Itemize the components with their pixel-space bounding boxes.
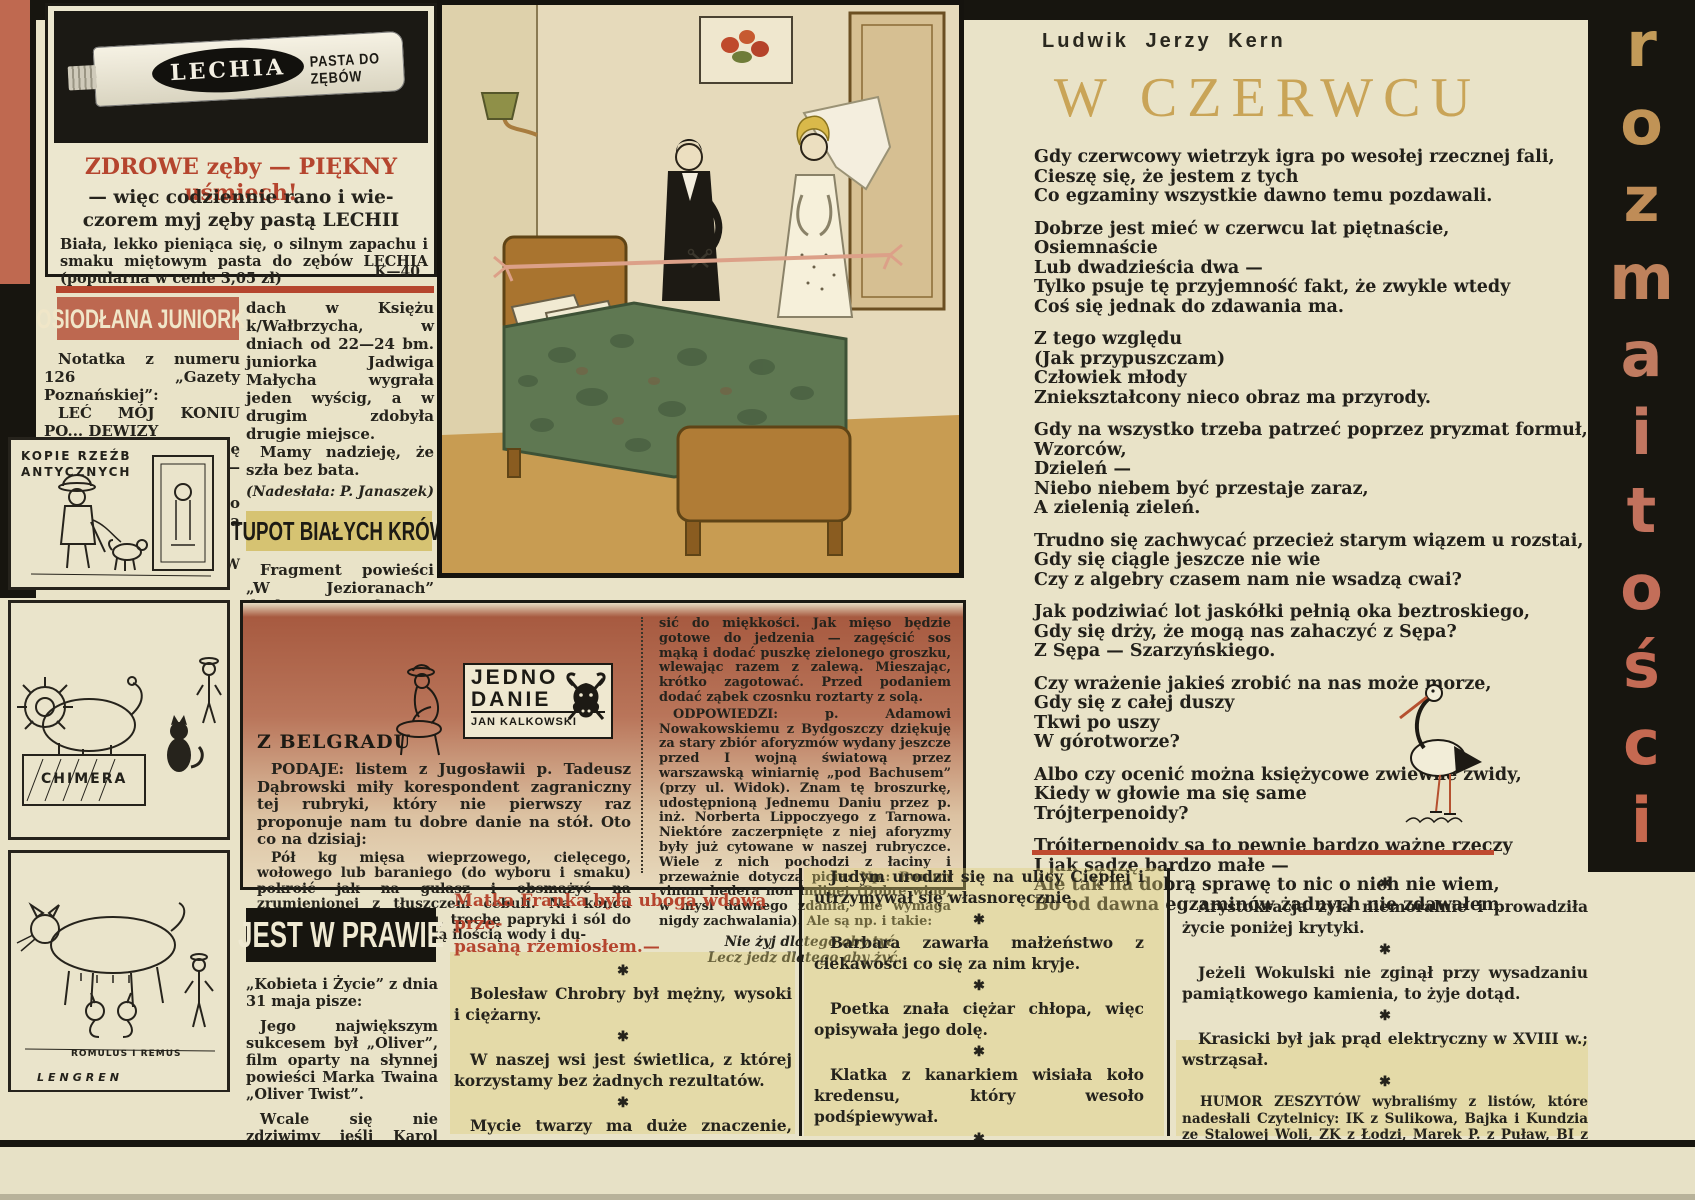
humor-quote: W naszej wsi jest świetlica, z której ko… (454, 1049, 792, 1091)
jedno-danie-logo: JEDNO DANIE JAN KALKOWSKI (463, 663, 613, 739)
toothpaste-tube-illustration: LECHIA PASTA DO ZĘBÓW (93, 31, 406, 107)
poem-underline (1032, 850, 1494, 855)
humor-quote: Krasicki był jak prąd elektryczny w XVII… (1182, 1028, 1588, 1070)
asterisk-separator: ✱ (454, 963, 792, 979)
masthead-rozmaitosci: r o z m a i t o ś c i (1588, 0, 1695, 872)
paragraph: LEĆ MÓJ KONIU PO... DEWIZY (44, 404, 240, 440)
asterisk-separator: ✱ (454, 1029, 792, 1045)
product-label: PASTA DO ZĘBÓW (309, 50, 391, 88)
masthead-letter: o (1620, 557, 1663, 619)
scan-bottom-edge (0, 1194, 1695, 1200)
paragraph: PODAJE: listem z Jugosławii p. Tadeusz D… (257, 761, 631, 849)
asterisk-separator: ✱ (814, 1044, 1144, 1060)
stanza: Jak podziwiać lot jaskółki pełnią oka be… (1034, 603, 1590, 662)
tupot-title-box: TUPOT BIAŁYCH KRÓW (246, 511, 432, 551)
wedding-cartoon (437, 0, 964, 578)
cartoon-panel-romulus-remus: ROMULUS I REMUS LENGREN (8, 850, 230, 1092)
paragraph: Mamy nadzieję, że szła bez bata. (246, 443, 434, 479)
bull-head-icon (563, 669, 609, 725)
asterisk-separator: ✱ (1182, 1008, 1588, 1024)
stanza: Gdy na wszystko trzeba patrzeć poprzez p… (1034, 421, 1590, 519)
cartoon-panel-chimera: CHIMERA (8, 600, 230, 840)
chimera-drawing (11, 603, 227, 837)
masthead-letter: i (1631, 402, 1652, 464)
humor-quote: Poetka znała ciężar chłopa, więc opisywa… (814, 998, 1144, 1040)
asterisk-separator: ✱ (1182, 876, 1588, 892)
prawie-title-box: JEST W PRAWIE (246, 908, 436, 962)
humor-colB-heading: Matka Franka była ubogą wdową prze- pasa… (454, 890, 792, 959)
stanza: Trudno się zachwycać przecież starym wią… (1034, 532, 1590, 591)
jedno-column-divider (641, 617, 643, 873)
asterisk-separator: ✱ (1182, 942, 1588, 958)
divider-c-d (1167, 868, 1170, 1136)
divider-b-c (799, 868, 802, 1136)
poem-title: W CZERWCU (1030, 66, 1505, 130)
prawie-title: JEST W PRAWIE (238, 914, 444, 956)
asterisk-separator: ✱ (1182, 1074, 1588, 1090)
humor-quote: Jeżeli Wokulski nie zginął przy wysadzan… (1182, 962, 1588, 1004)
humor-column-b: Matka Franka była ubogą wdową prze- pasa… (454, 890, 792, 1181)
ad-body: Biała, lekko pieniąca się, o silnym zapa… (60, 236, 428, 287)
humor-quote: Klatka z kanarkiem wisiała koło kredensu… (814, 1064, 1144, 1127)
jedno-danie-box: JEDNO DANIE JAN KALKOWSKI Z BELGRADU POD… (240, 600, 966, 890)
panel3-caption: ROMULUS I REMUS (71, 1049, 182, 1059)
osiodlana-title-box: OSIODŁANA JUNIORKA (57, 297, 239, 340)
humor-quote: Judym urodził się na ulicy Ciepłej i utr… (814, 866, 1144, 908)
tube-cap (68, 65, 97, 90)
masthead-letter: r (1626, 14, 1657, 76)
masthead-letter: m (1609, 247, 1674, 309)
belgrade-heading: Z BELGRADU (257, 731, 411, 753)
panel2-caption: CHIMERA (41, 771, 127, 787)
paragraph: Notatka z numeru 126 „Gazety Poznańskiej… (44, 350, 240, 404)
paragraph: sić do miękkości. Jak mięso będzie gotow… (659, 617, 951, 706)
artist-signature: LENGREN (37, 1071, 123, 1084)
asterisk-separator: ✱ (814, 912, 1144, 928)
brand-name: LECHIA (169, 54, 286, 86)
left-terracotta-strip (0, 0, 30, 284)
masthead-letter: c (1623, 712, 1660, 774)
masthead-letter: t (1627, 480, 1657, 542)
stanza: Dobrze jest mieć w czerwcu lat piętnaści… (1034, 220, 1590, 318)
paragraph: „Kobieta i Życie” z dnia 31 maja pisze: (246, 976, 438, 1010)
credit: (Nadesłała: P. Janaszek) (246, 483, 434, 501)
masthead-letter: ś (1623, 635, 1660, 697)
lechia-photo: LECHIA PASTA DO ZĘBÓW (54, 11, 428, 143)
paragraph: dach w Księżu k/Wałbrzycha, w dniach od … (246, 299, 434, 443)
magazine-page: LECHIA PASTA DO ZĘBÓW ZDROWE zęby — PIĘK… (0, 0, 1695, 1200)
humor-quote: Barbara zawarła małżeństwo z ciekawości … (814, 932, 1144, 974)
masthead-letter: a (1621, 324, 1663, 386)
ad-code: K—40 (374, 264, 420, 280)
red-rule-under-ad (56, 286, 434, 293)
stanza: Albo czy ocenić można księżycowe zwiewne… (1034, 766, 1590, 825)
paragraph: Jego największym sukcesem był „Oliver”, … (246, 1018, 438, 1103)
stanza: Z tego względu (Jak przypuszczam) Człowi… (1034, 330, 1590, 408)
masthead-letter: z (1623, 169, 1659, 231)
lechia-ad: LECHIA PASTA DO ZĘBÓW ZDROWE zęby — PIĘK… (45, 3, 437, 277)
asterisk-separator: ✱ (454, 1095, 792, 1111)
cartoon-panel-antique-copies: KOPIE RZEŹB ANTYCZNYCH (8, 437, 230, 590)
ad-subline: — więc codziennie rano i wie- czorem myj… (48, 186, 434, 232)
humor-column-d: ✱ Arystokracja żyła niemoralnie i prowad… (1182, 872, 1588, 1160)
stanza: Gdy czerwcowy wietrzyk igra po wesołej r… (1034, 148, 1590, 207)
stork-drawing (1396, 660, 1488, 836)
tupot-title: TUPOT BIAŁYCH KRÓW (231, 522, 447, 540)
asterisk-separator: ✱ (814, 978, 1144, 994)
panel1-caption: KOPIE RZEŹB ANTYCZNYCH (21, 448, 132, 480)
bottom-rule (0, 1140, 1695, 1147)
poem-body: Gdy czerwcowy wietrzyk igra po wesołej r… (1034, 148, 1590, 928)
masthead-letter: i (1631, 790, 1652, 852)
wedding-cartoon-drawing (442, 5, 959, 573)
page-bottom-margin (0, 1147, 1695, 1200)
poem-author: Ludwik Jerzy Kern (1042, 30, 1286, 53)
lechia-brand-oval: LECHIA (151, 44, 305, 96)
stanza: Czy wrażenie jakieś zrobić na nas może m… (1034, 675, 1590, 753)
humor-quote: Arystokracja żyła niemoralnie i prowadzi… (1182, 896, 1588, 938)
osiodlana-title: OSIODŁANA JUNIORKA (37, 310, 260, 328)
masthead-letter: o (1620, 92, 1663, 154)
humor-quote: Bolesław Chrobry był mężny, wysoki i cię… (454, 983, 792, 1025)
